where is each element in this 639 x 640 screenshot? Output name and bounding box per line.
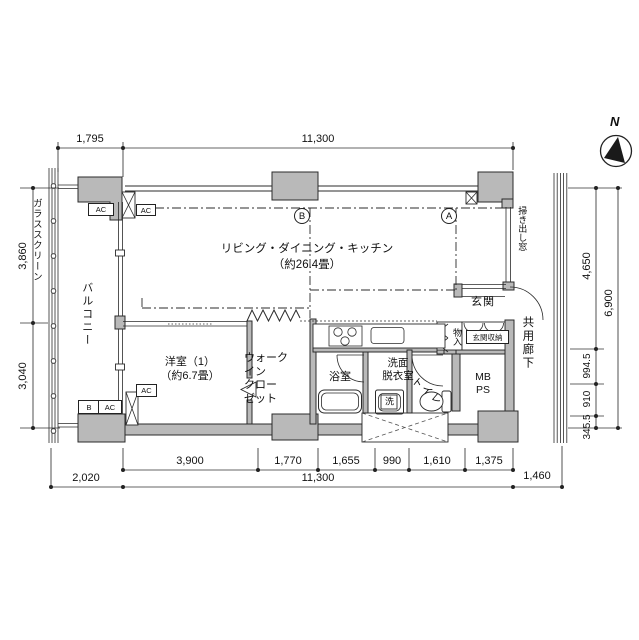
mb-ps-label: MB PS <box>475 371 491 397</box>
north-label: N <box>610 114 619 130</box>
dim-right-910: 910 <box>582 391 595 408</box>
north-arrow-icon <box>601 136 632 167</box>
storage-label: 物入 <box>448 325 462 349</box>
floor-plan-drawing <box>0 0 639 640</box>
dim-bottom-990: 990 <box>383 455 401 469</box>
ac-label-room: AC <box>136 384 157 397</box>
b-label-bottom: B <box>78 400 100 414</box>
laundry-label: 洗 <box>385 396 394 407</box>
dim-bottom-2020: 2,020 <box>72 472 100 486</box>
dim-right-994: 994.5 <box>582 353 595 378</box>
western-room-label: 洋室（1） （約6.7畳） <box>160 355 219 383</box>
balcony-label: バルコニー <box>79 282 93 347</box>
ldk-label: リビング・ダイニング・キッチン （約26.4畳） <box>221 241 394 273</box>
dim-bottom-1375: 1,375 <box>475 455 503 469</box>
dim-right-4650: 4,650 <box>581 252 595 280</box>
dim-bottom-1460: 1,460 <box>523 470 551 484</box>
dim-bottom-1655: 1,655 <box>332 455 360 469</box>
ac-label-top2: AC <box>136 204 156 216</box>
dim-top-11300: 11,300 <box>302 133 335 147</box>
glass-screen-railing <box>49 168 78 443</box>
corridor-edge-hatch <box>554 173 567 443</box>
dim-left-3040: 3,040 <box>17 362 31 390</box>
point-a-marker: A <box>441 208 457 224</box>
dim-bottom-3900: 3,900 <box>176 455 204 469</box>
glass-screen-label: ガラススクリーン <box>30 198 42 282</box>
common-corridor-label: 共用廊下 <box>520 316 534 370</box>
dim-top-1795: 1,795 <box>76 133 104 147</box>
dim-right-6900: 6,900 <box>603 289 617 317</box>
entrance-label: 玄関 <box>471 296 495 310</box>
dim-bottom-1610: 1,610 <box>423 455 451 469</box>
bathroom-label: 浴室 <box>329 371 351 385</box>
walk-in-closet-label: ウォーク イン クロー ゼット <box>244 352 288 406</box>
dim-right-345: 345.5 <box>582 414 595 439</box>
sliding-window-label: 掃き出し窓 <box>516 206 527 251</box>
washroom-label: 洗面 脱衣室 <box>382 357 414 383</box>
dim-bottom-1770: 1,770 <box>274 455 302 469</box>
dim-bottom-11300: 11,300 <box>302 472 335 486</box>
ac-label-bottom: AC <box>98 400 122 414</box>
entrance-storage-label: 玄関収納 <box>466 330 509 344</box>
floor-plan: リビング・ダイニング・キッチン （約26.4畳） 洋室（1） （約6.7畳） ウ… <box>0 0 639 640</box>
ac-label-top: AC <box>88 203 114 216</box>
dim-left-3860: 3,860 <box>17 242 31 270</box>
point-b-marker: B <box>294 208 310 224</box>
